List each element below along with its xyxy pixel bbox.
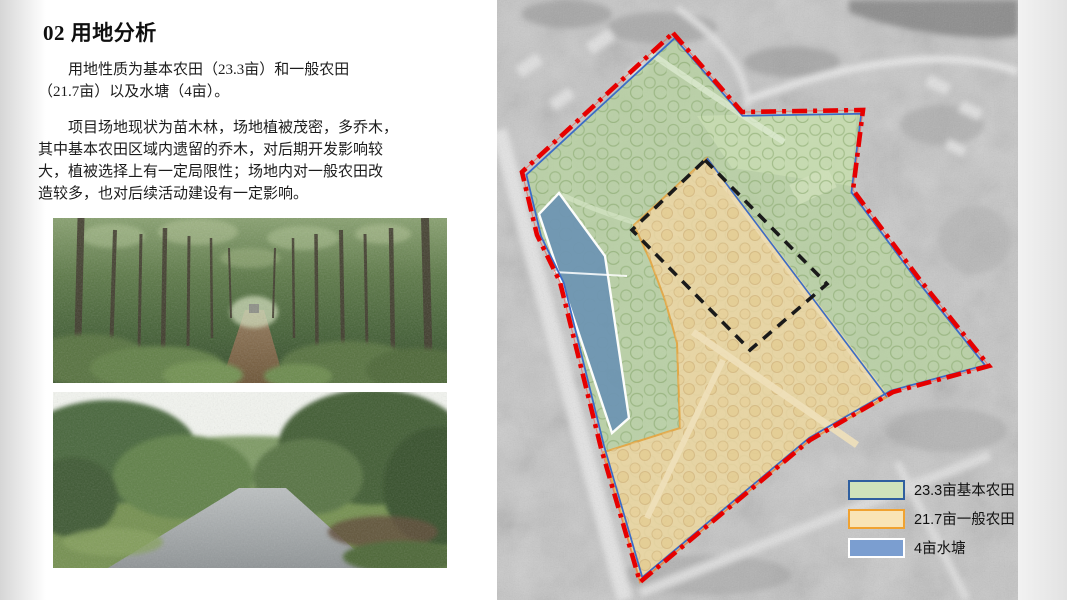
forest-path-photo <box>53 218 447 383</box>
site-condition-paragraph: 项目场地现状为苗木林，场地植被茂密，多乔木， 其中基本农田区域内遗留的乔木，对后… <box>38 117 460 205</box>
legend-item-pond: 4亩水塘 <box>848 537 1015 558</box>
pond-swatch <box>848 538 905 558</box>
legend-item-general-farmland: 21.7亩一般农田 <box>848 508 1015 529</box>
legend-label: 4亩水塘 <box>914 537 966 558</box>
map-legend: 23.3亩基本农田 21.7亩一般农田 4亩水塘 <box>848 479 1015 566</box>
general-farmland-swatch <box>848 509 905 529</box>
legend-item-basic-farmland: 23.3亩基本农田 <box>848 479 1015 500</box>
legend-label: 23.3亩基本农田 <box>914 479 1015 500</box>
land-use-paragraph: 用地性质为基本农田（23.3亩）和一般农田 （21.7亩）以及水塘（4亩）。 <box>38 59 460 103</box>
slide-right-gradient <box>1018 0 1067 600</box>
basic-farmland-swatch <box>848 480 905 500</box>
slide: { "slide": { "title": "02 用地分析", "body":… <box>0 0 1067 600</box>
site-road-photo <box>53 392 447 568</box>
legend-label: 21.7亩一般农田 <box>914 508 1015 529</box>
page-title: 02 用地分析 <box>43 17 157 47</box>
